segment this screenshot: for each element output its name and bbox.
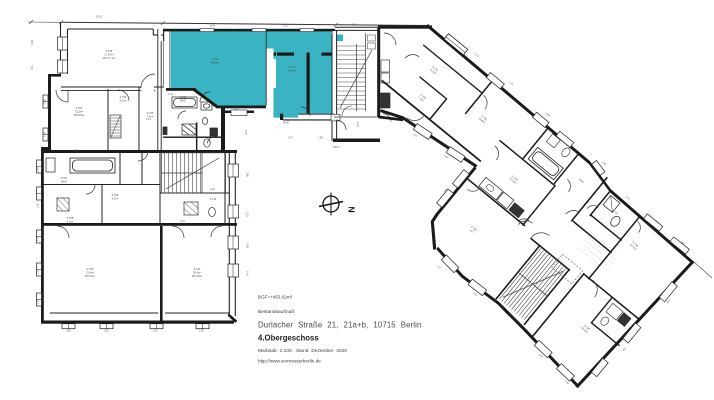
svg-text:1.01: 1.01 <box>168 93 173 96</box>
svg-text:10.52: 10.52 <box>96 16 103 19</box>
svg-text:59.40: 59.40 <box>283 122 290 125</box>
svg-text:2.12: 2.12 <box>146 118 151 121</box>
svg-text:BAD: BAD <box>180 98 185 102</box>
svg-text:28.9m²: 28.9m² <box>211 60 219 64</box>
svg-text:WO:21m: WO:21m <box>85 274 95 278</box>
svg-text:4.Obergeschoss: 4.Obergeschoss <box>258 334 319 343</box>
svg-text:2.95: 2.95 <box>37 299 40 304</box>
svg-text:2.95: 2.95 <box>199 330 204 333</box>
svg-text:1.01: 1.01 <box>180 220 185 223</box>
svg-text:2.97: 2.97 <box>37 236 40 241</box>
svg-text:2.92: 2.92 <box>104 330 109 333</box>
svg-text:0.711: 0.711 <box>212 57 219 61</box>
svg-text:N: N <box>347 207 357 213</box>
svg-text:0.703: 0.703 <box>106 49 113 53</box>
svg-text:2.96: 2.96 <box>37 167 40 172</box>
svg-text:2.98: 2.98 <box>31 40 34 45</box>
svg-text:1.49: 1.49 <box>246 271 249 276</box>
svg-text:Bestandsaufmaß: Bestandsaufmaß <box>258 309 294 315</box>
svg-text:1.80: 1.80 <box>318 137 323 140</box>
svg-text:6.1m²: 6.1m² <box>67 219 74 223</box>
svg-text:2.47: 2.47 <box>288 137 293 140</box>
svg-text:3.85: 3.85 <box>66 330 71 333</box>
svg-text:8.94: 8.94 <box>210 25 215 28</box>
svg-text:2.98: 2.98 <box>44 99 47 104</box>
svg-text:18.97: 18.97 <box>333 146 340 149</box>
svg-text:0.704: 0.704 <box>120 95 127 99</box>
svg-text:BGF=+453.02m²: BGF=+453.02m² <box>258 295 293 300</box>
svg-text:3.81: 3.81 <box>153 330 158 333</box>
svg-text:http://www.vermesserberlin.de: http://www.vermesserberlin.de <box>258 359 321 364</box>
svg-text:0.707: 0.707 <box>61 176 68 180</box>
svg-text:2.39: 2.39 <box>234 108 239 111</box>
svg-text:0.710: 0.710 <box>180 95 187 99</box>
svg-text:20.4m²: 20.4m² <box>193 270 201 274</box>
svg-text:2.95: 2.95 <box>246 243 249 248</box>
svg-text:1.52: 1.52 <box>37 203 40 208</box>
svg-text:0.708: 0.708 <box>67 216 74 220</box>
svg-text:0.720: 0.720 <box>194 267 201 271</box>
svg-text:Maßstab 1:100, Stand Dezember: Maßstab 1:100, Stand Dezember 2020 <box>258 348 347 354</box>
svg-text:1.51: 1.51 <box>37 269 40 274</box>
svg-text:9.2m²: 9.2m² <box>112 196 119 200</box>
svg-text:Durlacher Straße 21, 21a+b, 10: Durlacher Straße 21, 21a+b, 10715 Berlin <box>258 321 422 330</box>
svg-text:1.48: 1.48 <box>44 132 47 137</box>
svg-text:1.51: 1.51 <box>31 65 34 70</box>
svg-text:15.2m²: 15.2m² <box>75 109 83 113</box>
svg-text:WO:15m: WO:15m <box>74 113 84 117</box>
svg-text:21.9m²: 21.9m² <box>86 270 94 274</box>
svg-text:WO:20m: WO:20m <box>192 274 202 278</box>
svg-text:0.716: 0.716 <box>289 65 296 69</box>
svg-text:4.15: 4.15 <box>244 130 247 135</box>
svg-text:5.12: 5.12 <box>283 25 288 28</box>
svg-text:3.61: 3.61 <box>352 24 357 27</box>
svg-text:2.96: 2.96 <box>246 172 249 177</box>
svg-text:WO:17.1m: WO:17.1m <box>103 56 115 60</box>
svg-text:0.705: 0.705 <box>87 267 94 271</box>
svg-text:14.8m²: 14.8m² <box>288 68 296 72</box>
svg-text:1.26: 1.26 <box>210 188 215 191</box>
svg-text:1.51: 1.51 <box>246 212 249 217</box>
svg-text:17.07m²: 17.07m² <box>104 52 114 56</box>
svg-text:0.702: 0.702 <box>76 106 83 110</box>
svg-text:0.706: 0.706 <box>147 111 154 115</box>
svg-text:0.712: 0.712 <box>210 197 217 201</box>
svg-text:8.2m²: 8.2m² <box>120 98 127 102</box>
svg-text:0.709: 0.709 <box>112 193 119 197</box>
svg-text:0.98: 0.98 <box>74 150 79 153</box>
svg-text:BAD: BAD <box>61 179 66 183</box>
svg-text:1.21: 1.21 <box>356 122 359 127</box>
